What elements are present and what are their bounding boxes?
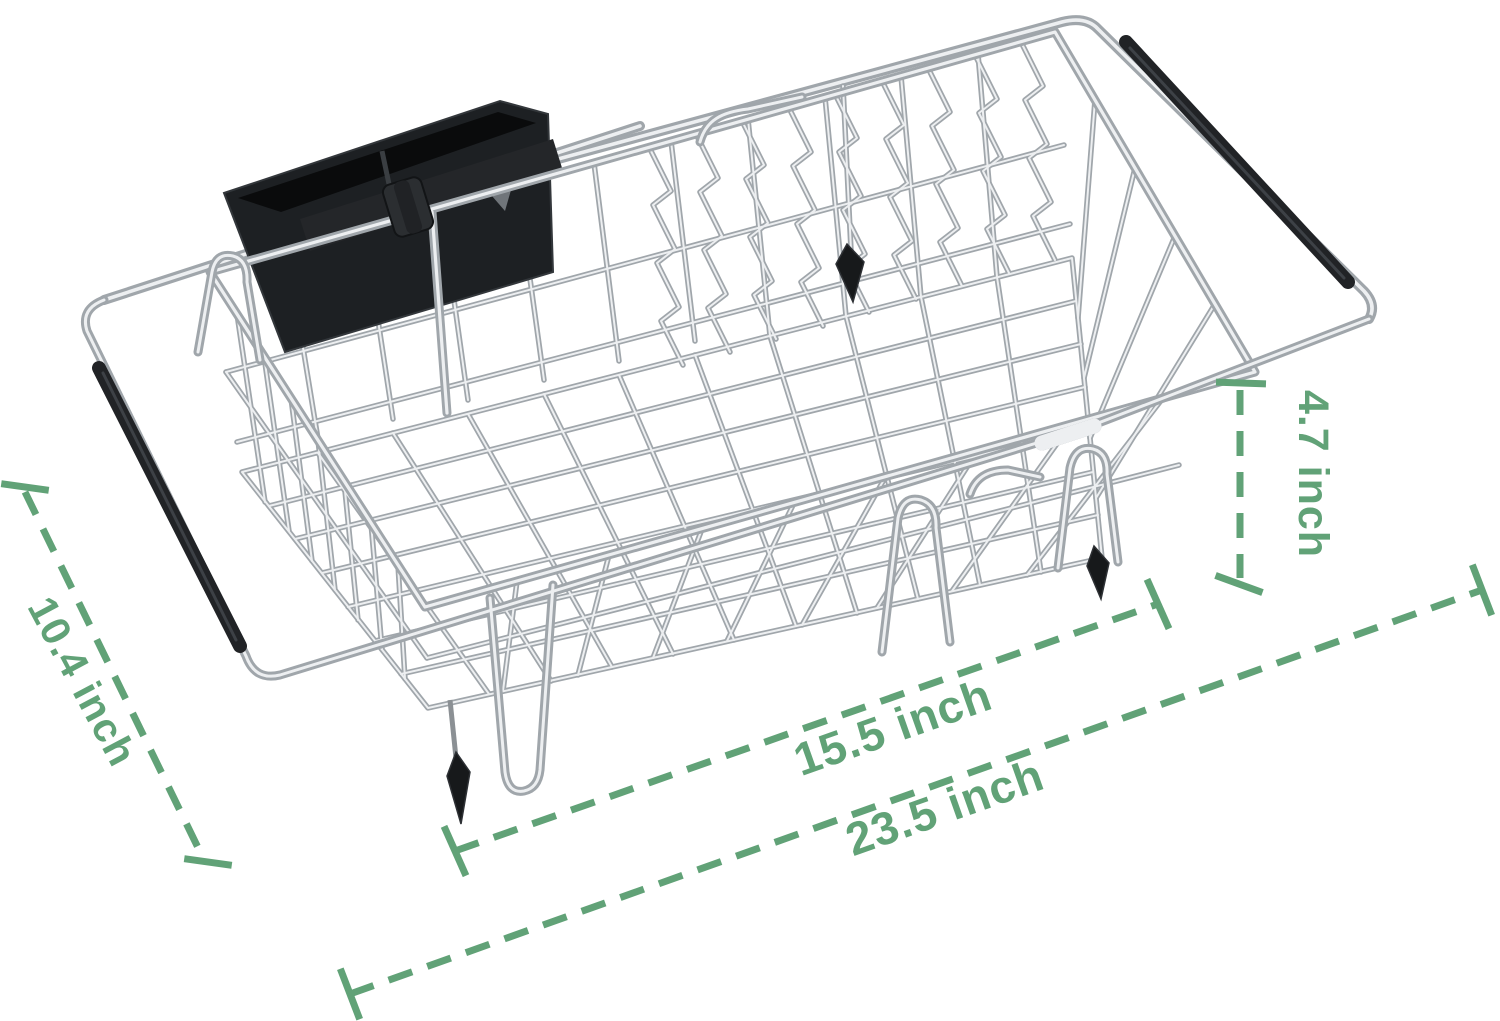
dimension-tick — [1147, 579, 1169, 628]
dimension-tick — [1, 484, 49, 491]
product-dimension-diagram: 10.4 inch 4.7 inch 15.5 inch 23.5 inch — [0, 0, 1500, 1021]
dimension-tick — [1216, 575, 1263, 592]
dimension-line — [25, 492, 205, 862]
mount-arch — [1058, 448, 1118, 568]
foot-left — [447, 752, 470, 824]
dimension-label-height: 4.7 inch — [1289, 390, 1337, 558]
dimension-height: 4.7 inch — [1216, 382, 1337, 592]
utensil-holder-body — [224, 101, 553, 352]
foot-right — [1087, 546, 1109, 599]
dish-rack-illustration: 10.4 inch 4.7 inch 15.5 inch 23.5 inch — [0, 0, 1500, 1021]
dimension-tick — [1216, 382, 1266, 384]
dimension-line — [455, 604, 1158, 851]
dimension-label-basket-length: 15.5 inch — [787, 668, 998, 786]
dimension-tick — [184, 859, 232, 866]
dimension-label-extended-length: 23.5 inch — [839, 748, 1050, 866]
dimension-depth: 10.4 inch — [1, 484, 232, 866]
